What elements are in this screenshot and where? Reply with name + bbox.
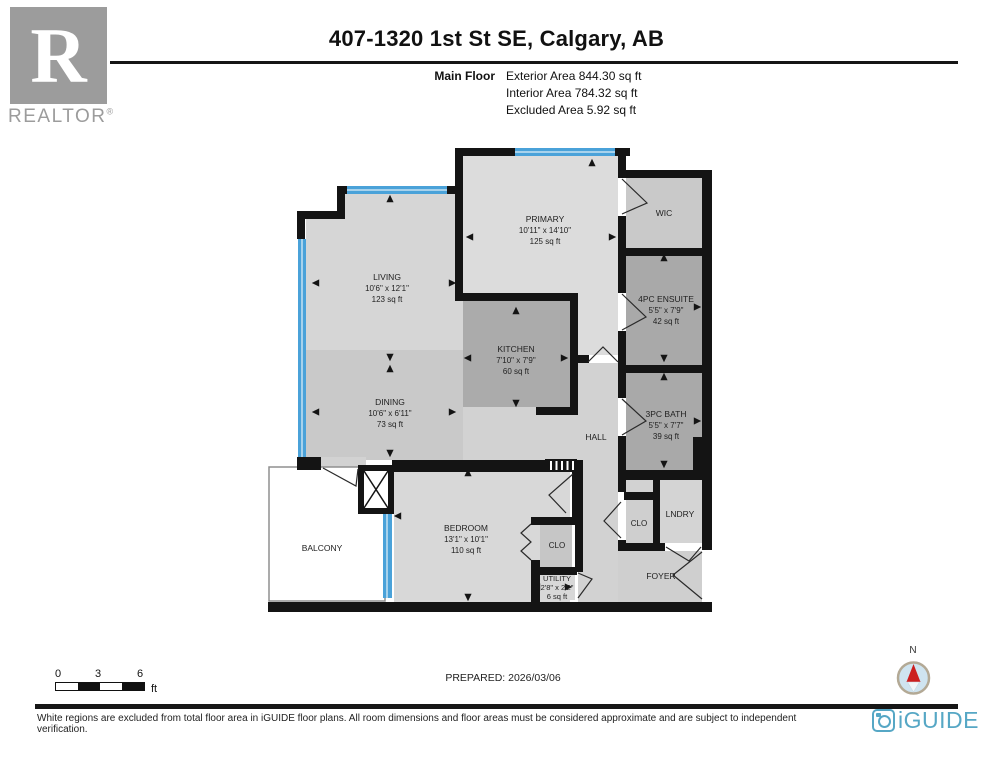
utility-label: UTILITY — [543, 574, 571, 583]
svg-text:39 sq ft: 39 sq ft — [653, 432, 680, 441]
iguide-wordmark: iGUIDE — [898, 707, 979, 734]
dining-label: DINING — [375, 397, 405, 407]
bedroom-label: BEDROOM — [444, 523, 488, 533]
footer-divider — [35, 704, 958, 709]
svg-text:10'6" x 12'1": 10'6" x 12'1" — [365, 284, 409, 293]
title-divider — [110, 61, 958, 64]
svg-text:42 sq ft: 42 sq ft — [653, 317, 680, 326]
svg-text:7'10" x 7'9": 7'10" x 7'9" — [496, 356, 536, 365]
svg-text:110 sq ft: 110 sq ft — [451, 546, 482, 555]
balcony-label: BALCONY — [302, 543, 343, 553]
floorplan-page: R REALTOR® 407-1320 1st St SE, Calgary, … — [0, 0, 993, 768]
ensuite-label: 4PC ENSUITE — [638, 294, 694, 304]
svg-text:5'5" x 7'9": 5'5" x 7'9" — [649, 306, 684, 315]
registered-mark: ® — [107, 107, 115, 117]
svg-text:60 sq ft: 60 sq ft — [503, 367, 530, 376]
hall-closet-label: CLO — [631, 519, 647, 528]
foyer-label: FOYER — [646, 571, 675, 581]
svg-text:2'8" x 2'2": 2'8" x 2'2" — [541, 583, 574, 592]
svg-text:123 sq ft: 123 sq ft — [372, 295, 403, 304]
floor-label: Main Floor — [260, 68, 506, 85]
hall-label: HALL — [585, 432, 607, 442]
scale-unit: ft — [151, 683, 157, 695]
floor-area-summary: Main FloorExterior Area 844.30 sq ft Int… — [260, 68, 641, 119]
window — [515, 148, 615, 156]
iguide-logo: iGUIDE — [872, 707, 979, 734]
floorplan-drawing: LIVING 10'6" x 12'1" 123 sq ft DINING 10… — [250, 140, 740, 620]
window — [383, 513, 392, 598]
wic-label: WIC — [656, 208, 673, 218]
svg-text:6 sq ft: 6 sq ft — [547, 592, 568, 601]
svg-text:73 sq ft: 73 sq ft — [377, 420, 404, 429]
iguide-camera-icon — [872, 709, 895, 732]
column-hatch — [358, 465, 394, 514]
window — [298, 239, 306, 457]
svg-text:10'11" x 14'10": 10'11" x 14'10" — [519, 226, 571, 235]
pocket-door-marker — [545, 459, 577, 472]
excluded-area: Excluded Area 5.92 sq ft — [506, 102, 636, 119]
living-label: LIVING — [373, 272, 401, 282]
kitchen-label: KITCHEN — [497, 344, 534, 354]
bedroom-closet-label: CLO — [549, 541, 565, 550]
svg-text:13'1" x 10'1": 13'1" x 10'1" — [444, 535, 488, 544]
interior-area: Interior Area 784.32 sq ft — [506, 85, 637, 102]
laundry-label: LNDRY — [666, 509, 695, 519]
hall — [578, 363, 618, 602]
compass: N — [886, 641, 941, 703]
exterior-area: Exterior Area 844.30 sq ft — [506, 68, 641, 85]
prepared-date: PREPARED: 2026/03/06 — [0, 672, 993, 684]
primary-label: PRIMARY — [526, 214, 565, 224]
svg-text:10'6" x 6'11": 10'6" x 6'11" — [368, 409, 411, 418]
compass-north-label: N — [909, 645, 916, 656]
footer-disclaimer: White regions are excluded from total fl… — [37, 713, 837, 735]
svg-text:5'5" x 7'7": 5'5" x 7'7" — [649, 421, 684, 430]
realtor-logo: R — [10, 7, 107, 104]
realtor-wordmark: REALTOR® — [8, 106, 115, 128]
page-title: 407-1320 1st St SE, Calgary, AB — [0, 26, 993, 52]
kitchen — [463, 301, 570, 407]
bath-label: 3PC BATH — [646, 409, 687, 419]
svg-text:125 sq ft: 125 sq ft — [530, 237, 561, 246]
window — [347, 186, 447, 194]
